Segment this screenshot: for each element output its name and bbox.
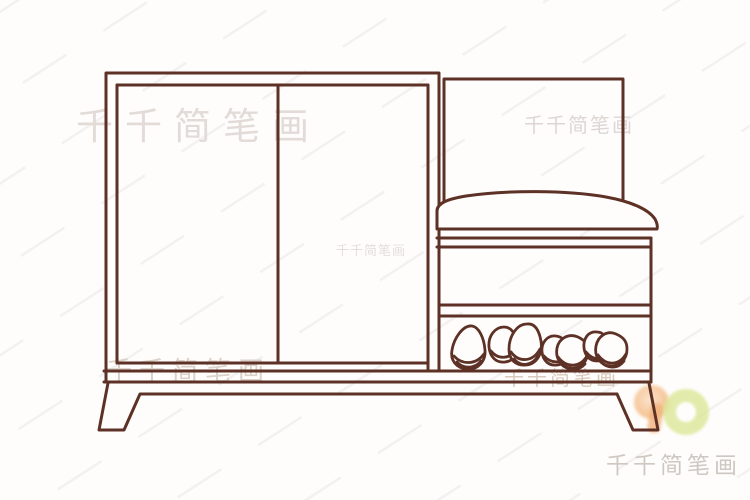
illustration-canvas: 千千简笔画 千千简笔画 千千简笔画 千千简笔画 千千简笔画 千千简笔画	[0, 0, 750, 500]
cabinet-outer-frame	[106, 73, 439, 382]
shoe-pair-2	[542, 336, 588, 370]
right-leg	[617, 383, 658, 430]
shoes-group	[452, 324, 627, 369]
shoe-single	[452, 326, 485, 369]
shoe-cabinet-line-drawing	[0, 0, 750, 500]
shoe-pair-1	[489, 324, 541, 365]
shoe-pair-3	[584, 332, 627, 367]
left-leg	[99, 383, 140, 430]
